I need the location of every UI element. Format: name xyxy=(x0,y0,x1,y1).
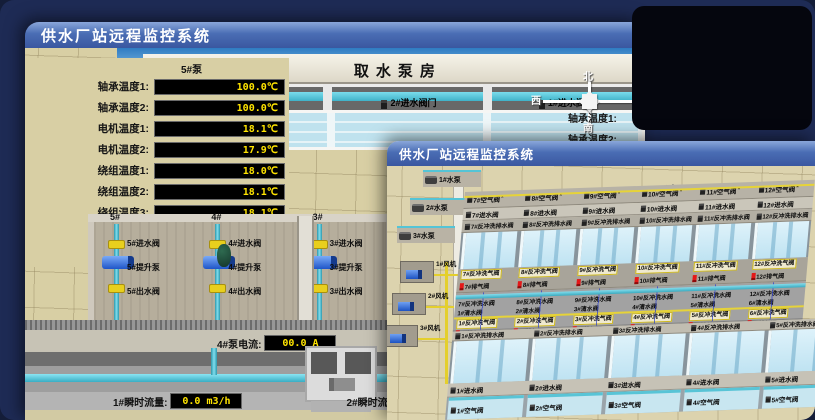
valve-label: 6#反冲洗气阀 xyxy=(747,308,789,319)
valve-icon xyxy=(640,217,646,223)
flow-reading: 1#瞬时流量: 0.0 m3/h xyxy=(113,393,242,409)
valve-icon xyxy=(691,324,697,330)
panel-icon xyxy=(311,352,337,374)
valve-label: 1#进水阀 xyxy=(456,384,484,395)
valve-label: 4#反冲洗排水阀 xyxy=(697,321,740,332)
inlet-valve[interactable]: 2#进水阀 xyxy=(526,380,606,393)
filter-cell xyxy=(765,328,815,373)
filter-cell xyxy=(519,229,576,267)
filter-cell xyxy=(608,333,686,378)
window-title: 供水厂站远程监控系统 xyxy=(41,25,211,46)
info-label: 电机温度2: xyxy=(33,142,149,157)
valve-icon xyxy=(765,396,771,402)
filter-cell xyxy=(686,331,764,376)
valve-label: 12#反冲洗气阀 xyxy=(752,258,797,270)
valve-label: 3#反冲洗排水阀 xyxy=(618,324,661,335)
flow-value: 0.0 m3/h xyxy=(170,393,242,409)
inlet-valve[interactable]: 4#进水阀 xyxy=(683,374,763,387)
valve-label: 10#反冲洗排水阀 xyxy=(645,214,692,225)
motor-icon xyxy=(390,334,406,343)
pump-icon xyxy=(425,176,437,184)
panel-icon xyxy=(345,352,371,374)
flow-label: 1#瞬时流量: xyxy=(113,394,167,409)
valve-icon xyxy=(756,213,762,219)
front-window-titlebar: 供水厂站远程监控系统 xyxy=(387,141,815,166)
inlet-valve[interactable]: 9#进水阀 xyxy=(579,203,638,216)
outlet-valve-label: 4#出水阀 xyxy=(228,286,261,297)
backwash-air-valve[interactable]: 2#反冲洗气阀 xyxy=(511,315,570,327)
outlet-valve-label: 3#出水阀 xyxy=(330,286,363,297)
info-label: 绕组温度1: xyxy=(33,163,149,178)
blower-box-icon xyxy=(400,261,434,283)
valve-label: 1#清水阀 xyxy=(457,307,482,317)
side-label: 轴承温度1: xyxy=(568,110,617,131)
backwash-air-valve[interactable]: 1#反冲洗气阀 xyxy=(453,317,512,329)
valve-label: 3#进水阀 xyxy=(614,378,642,389)
compass-west-label: 西 xyxy=(531,92,541,107)
valve-icon xyxy=(765,376,771,382)
pump-label: 3#提升泵 xyxy=(330,262,363,273)
valve-label: 12#反冲洗排水阀 xyxy=(762,210,809,221)
valve-icon xyxy=(608,381,614,387)
pump-columns: 5# 5#进水阀 5#提升泵 5#出水阀 4# 4#进水阀 4#提升泵 xyxy=(88,224,392,320)
pump-label: 3#水泵 xyxy=(413,231,435,241)
pump-label: 2#水泵 xyxy=(426,203,448,213)
info-value: 17.9℃ xyxy=(154,142,285,158)
water-pump[interactable]: 2#水泵 xyxy=(410,198,468,215)
valve-icon xyxy=(534,330,540,336)
info-row: 轴承温度2: 100.0℃ xyxy=(33,99,285,116)
valve-icon xyxy=(686,379,692,385)
valve-label: 9#反冲洗气阀 xyxy=(577,264,619,275)
valve-label: 8#反冲洗排水阀 xyxy=(529,218,572,229)
clean-water-valve[interactable]: 2#清水阀 xyxy=(512,304,571,315)
side-panel-backdrop xyxy=(632,6,812,130)
valve-icon xyxy=(529,384,535,390)
pump-house-title: 取水泵房 xyxy=(354,60,442,81)
exhaust-valve-icon xyxy=(576,279,581,286)
air-blower[interactable]: 1#风机 xyxy=(400,258,464,284)
clean-water-valve[interactable]: 1#清水阀 xyxy=(454,306,513,317)
inlet-valve[interactable]: 3#进水阀 xyxy=(605,377,685,390)
page-background: 供水厂站远程监控系统 取水泵房 3#进水阀门 xyxy=(0,0,815,420)
valve-label: 11#反冲洗水阀 xyxy=(691,290,731,300)
filter-grid: 7#空气阀 * 8#空气阀 * 9#空气阀 * 10#空气阀 * xyxy=(445,180,815,420)
filter-pool-scene: 1#V滤池 1#水泵 2#水泵 3#水泵 xyxy=(387,166,815,420)
valve-label: 8#反冲洗水阀 xyxy=(516,296,553,306)
exhaust-valve[interactable]: 9#排气阀 xyxy=(573,276,632,287)
inlet-valve[interactable]: 5#进水阀 xyxy=(762,371,815,384)
inlet-valve-icon[interactable] xyxy=(108,240,125,249)
valve-label: 5#清水阀 xyxy=(690,299,715,309)
info-value: 100.0℃ xyxy=(154,79,285,95)
air-valve[interactable]: 12#空气阀 * xyxy=(755,180,815,198)
valve-icon xyxy=(699,203,705,209)
inlet-valve-label: 3#进水阀 xyxy=(330,238,363,249)
pump-pipe xyxy=(215,224,220,320)
exhaust-valve[interactable]: 12#排气阀 xyxy=(748,270,807,281)
valve-icon xyxy=(757,201,763,207)
pump-label: 1#水泵 xyxy=(439,175,461,185)
valve-icon xyxy=(524,209,530,215)
exhaust-valve[interactable]: 11#排气阀 xyxy=(689,272,748,283)
valve-label: 2#进水阀 xyxy=(535,381,563,392)
air-valve[interactable]: 11#空气阀 * xyxy=(697,182,757,200)
backwash-air-valve[interactable]: 4#反冲洗气阀 xyxy=(628,311,687,323)
info-label: 轴承温度1: xyxy=(33,79,149,94)
motor-icon xyxy=(406,270,422,279)
valve-label: 12#反冲洗水阀 xyxy=(749,288,790,298)
valve-label: 1#反冲洗气阀 xyxy=(456,318,498,329)
device-icon xyxy=(329,378,355,391)
valve-label: 2#进水阀门 xyxy=(390,96,436,109)
valve-label: 7#反冲洗水阀 xyxy=(458,298,495,308)
valve-icon xyxy=(613,327,619,333)
valve-label: 5#进水阀 xyxy=(771,373,799,384)
valve-icon xyxy=(608,401,614,407)
clean-water-valve[interactable]: 6#清水阀 xyxy=(745,296,804,307)
valve-label: 10#反冲洗气阀 xyxy=(635,262,680,274)
air-blower[interactable]: 2#风机 xyxy=(392,290,456,316)
valve-icon xyxy=(450,387,456,393)
exhaust-valve-icon xyxy=(751,273,756,280)
info-row: 绕组温度2: 18.1℃ xyxy=(33,183,285,200)
motor-icon xyxy=(398,302,414,311)
clean-water-valve[interactable]: 3#清水阀 xyxy=(571,302,630,313)
valve-label: 7#进水阀 xyxy=(472,208,500,219)
window-title: 供水厂站远程监控系统 xyxy=(399,144,534,163)
exhaust-valve[interactable]: 8#排气阀 xyxy=(515,278,574,289)
backwash-drain-valve[interactable]: 9#反冲洗排水阀 xyxy=(578,215,637,228)
outlet-valve-icon[interactable] xyxy=(209,284,226,293)
inlet-valve[interactable]: 8#进水阀 xyxy=(521,205,580,218)
air-valve[interactable]: 7#空气阀 * xyxy=(464,190,524,208)
valve-icon xyxy=(687,399,693,405)
valve-icon xyxy=(698,215,704,221)
pillar-label: 3# xyxy=(313,212,323,222)
filter-cell xyxy=(752,221,809,259)
valve-icon xyxy=(582,207,588,213)
air-valve[interactable]: 5#空气阀 xyxy=(762,384,815,409)
air-valve[interactable]: 10#空气阀 * xyxy=(638,184,698,202)
valve-label: 10#进水阀 xyxy=(646,202,677,213)
valve-label: 8#排气阀 xyxy=(523,279,548,289)
pump-pipe xyxy=(317,224,322,320)
valve-label: 11#排气阀 xyxy=(697,273,725,283)
current-label: 4#泵电流: xyxy=(217,336,261,351)
blower-label: 1#风机 xyxy=(436,258,456,268)
info-row: 绕组温度1: 18.0℃ xyxy=(33,162,285,179)
info-value: 100.0℃ xyxy=(154,100,285,116)
pump-info-header: 5#泵 xyxy=(181,61,202,76)
valve-label: 4#空气阀 xyxy=(693,396,721,407)
valve-label: 8#进水阀 xyxy=(530,206,558,217)
air-valve[interactable]: 2#空气阀 xyxy=(526,392,603,417)
inlet-valve[interactable]: 1#进水阀 xyxy=(447,382,527,395)
valve-icon xyxy=(451,407,457,413)
valve-label: 7#排气阀 xyxy=(464,281,489,291)
outlet-valve-icon[interactable] xyxy=(108,284,125,293)
exhaust-valve-icon xyxy=(693,275,698,282)
valve-label: 4#反冲洗气阀 xyxy=(631,312,673,323)
inlet-valve[interactable]: 7#进水阀 xyxy=(463,207,522,220)
valve-label: 11#反冲洗气阀 xyxy=(693,260,738,272)
exhaust-valve-icon xyxy=(459,283,464,290)
info-value: 18.1℃ xyxy=(154,184,285,200)
valve-label: 1#反冲洗排水阀 xyxy=(461,330,504,341)
valve-icon xyxy=(770,322,776,328)
inlet-valve[interactable]: 10#进水阀 xyxy=(637,201,696,214)
valve-label: 2#反冲洗气阀 xyxy=(514,316,556,327)
valve-icon xyxy=(455,333,461,339)
valve-label: 11#反冲洗排水阀 xyxy=(704,212,750,223)
air-valve[interactable]: 3#空气阀 xyxy=(604,390,681,415)
air-blower[interactable]: 3#风机 xyxy=(387,322,448,348)
filter-cell xyxy=(450,339,528,384)
valve-label: 4#进水阀 xyxy=(692,376,720,387)
compass-north-label: 北 xyxy=(583,68,593,83)
front-window: 供水厂站远程监控系统 1#V滤池 1#水泵 2#水泵 3#水泵 xyxy=(387,141,815,420)
info-label: 轴承温度2: xyxy=(33,100,149,115)
valve-label: 6#清水阀 xyxy=(748,297,773,307)
backwash-drain-valve[interactable]: 12#反冲洗排水阀 xyxy=(753,209,812,222)
valve-label: 5#反冲洗排水阀 xyxy=(776,319,815,330)
valve-icon xyxy=(581,219,587,225)
air-valve[interactable]: 1#空气阀 xyxy=(447,395,524,420)
filter-cell xyxy=(529,336,607,381)
valve-icon xyxy=(465,223,471,229)
info-row: 轴承温度1: 100.0℃ xyxy=(33,78,285,95)
inlet-valve[interactable]: 12#进水阀 xyxy=(754,197,813,210)
valve-label: 4#清水阀 xyxy=(632,301,657,311)
valve-label: 9#反冲洗水阀 xyxy=(574,294,611,304)
tank-icon[interactable] xyxy=(217,244,231,267)
pump-unit[interactable]: 5# 5#进水阀 5#提升泵 5#出水阀 xyxy=(88,224,189,320)
info-row: 电机温度2: 17.9℃ xyxy=(33,141,285,158)
valve-label: 12#进水阀 xyxy=(763,198,794,209)
water-pump[interactable]: 1#水泵 xyxy=(423,170,481,187)
inlet-valve-label: 4#进水阀 xyxy=(228,238,261,249)
blower-box-icon xyxy=(387,325,418,347)
pump-pipe xyxy=(114,224,119,320)
valve-label: 1#空气阀 xyxy=(456,404,484,415)
info-value: 18.1℃ xyxy=(154,121,285,137)
air-valve[interactable]: 4#空气阀 xyxy=(683,387,760,412)
inlet-valve-label: 5#进水阀 xyxy=(127,238,160,249)
air-valve[interactable]: 9#空气阀 * xyxy=(580,186,640,204)
valve-label: 9#进水阀 xyxy=(588,204,616,215)
inlet-gate-valve[interactable]: 2#进水阀门 xyxy=(330,84,487,110)
backwash-drain-valve[interactable]: 11#反冲洗排水阀 xyxy=(695,211,754,224)
backwash-drain-valve[interactable]: 5#反冲洗排水阀 xyxy=(767,318,815,330)
valve-icon xyxy=(523,221,529,227)
valve-icon xyxy=(466,211,472,217)
valve-icon xyxy=(641,205,647,211)
inlet-valve[interactable]: 11#进水阀 xyxy=(696,199,755,212)
valve-icon xyxy=(529,404,535,410)
valve-label: 5#空气阀 xyxy=(771,393,799,404)
pillar-label: 5# xyxy=(110,212,120,222)
pillar-label: 4# xyxy=(211,212,221,222)
valve-label: 9#排气阀 xyxy=(581,277,606,287)
backwash-drain-valve[interactable]: 10#反冲洗排水阀 xyxy=(636,213,695,226)
pump-unit[interactable]: 4# 4#进水阀 4#提升泵 4#出水阀 xyxy=(189,224,290,320)
water-pump[interactable]: 3#水泵 xyxy=(397,226,455,243)
info-value: 18.0℃ xyxy=(154,163,285,179)
clean-water-valve-row-bottom: 1#清水阀 2#清水阀 3#清水阀 4#清水阀 5#清水阀 6#清水阀 xyxy=(454,296,805,317)
filter-cell xyxy=(577,227,634,265)
valve-label: 10#排气阀 xyxy=(639,275,668,285)
valve-label: 3#空气阀 xyxy=(614,398,642,409)
valve-icon xyxy=(381,100,387,109)
backwash-air-valve[interactable]: 3#反冲洗气阀 xyxy=(570,313,629,325)
exhaust-valve[interactable]: 7#排气阀 xyxy=(456,280,515,291)
valve-label: 8#反冲洗气阀 xyxy=(519,266,561,277)
clean-water-valve[interactable]: 5#清水阀 xyxy=(687,298,746,309)
exhaust-valve-icon xyxy=(634,277,639,284)
info-row: 电机温度1: 18.1℃ xyxy=(33,120,285,137)
clean-water-valve[interactable]: 4#清水阀 xyxy=(629,300,688,311)
pump-icon xyxy=(399,232,411,240)
blower-label: 3#风机 xyxy=(420,322,440,332)
info-label: 绕组温度2: xyxy=(33,184,149,199)
backwash-air-valve[interactable]: 6#反冲洗气阀 xyxy=(744,307,803,319)
valve-label: 3#清水阀 xyxy=(574,303,599,313)
air-valve[interactable]: 8#空气阀 * xyxy=(522,188,582,206)
valve-label: 3#反冲洗气阀 xyxy=(573,314,615,325)
filter-cell xyxy=(460,231,517,269)
valve-label: 2#空气阀 xyxy=(535,401,563,412)
valve-label: 9#反冲洗排水阀 xyxy=(587,216,630,227)
backwash-drain-valve[interactable]: 7#反冲洗排水阀 xyxy=(461,219,520,232)
pump-icon xyxy=(412,204,424,212)
back-window-titlebar: 供水厂站远程监控系统 xyxy=(25,22,645,48)
walkway-bridge xyxy=(297,216,314,320)
info-label: 电机温度1: xyxy=(33,121,149,136)
outlet-valve-label: 5#出水阀 xyxy=(127,286,160,297)
valve-label: 7#反冲洗气阀 xyxy=(460,269,502,280)
pump-label: 5#提升泵 xyxy=(127,262,160,273)
pump-label: 4#提升泵 xyxy=(228,262,261,273)
valve-label: 2#清水阀 xyxy=(515,305,540,315)
valve-label: 10#反冲洗水阀 xyxy=(633,292,674,302)
blower-label: 2#风机 xyxy=(428,290,448,300)
exhaust-valve[interactable]: 10#排气阀 xyxy=(631,274,690,285)
valve-label: 7#反冲洗排水阀 xyxy=(471,220,514,231)
exhaust-valve-icon xyxy=(518,281,523,288)
backwash-air-valve[interactable]: 5#反冲洗气阀 xyxy=(686,309,745,321)
filter-cell xyxy=(693,223,750,261)
compass-star xyxy=(582,94,597,109)
valve-label: 5#反冲洗气阀 xyxy=(689,310,731,321)
valve-label: 2#反冲洗排水阀 xyxy=(540,327,583,338)
backwash-drain-valve[interactable]: 8#反冲洗排水阀 xyxy=(520,217,579,230)
pipe-stub xyxy=(211,348,217,375)
valve-label: 11#进水阀 xyxy=(705,200,736,211)
valve-label: 12#排气阀 xyxy=(756,271,785,281)
blower-box-icon xyxy=(392,293,426,315)
filter-cell xyxy=(635,225,692,263)
